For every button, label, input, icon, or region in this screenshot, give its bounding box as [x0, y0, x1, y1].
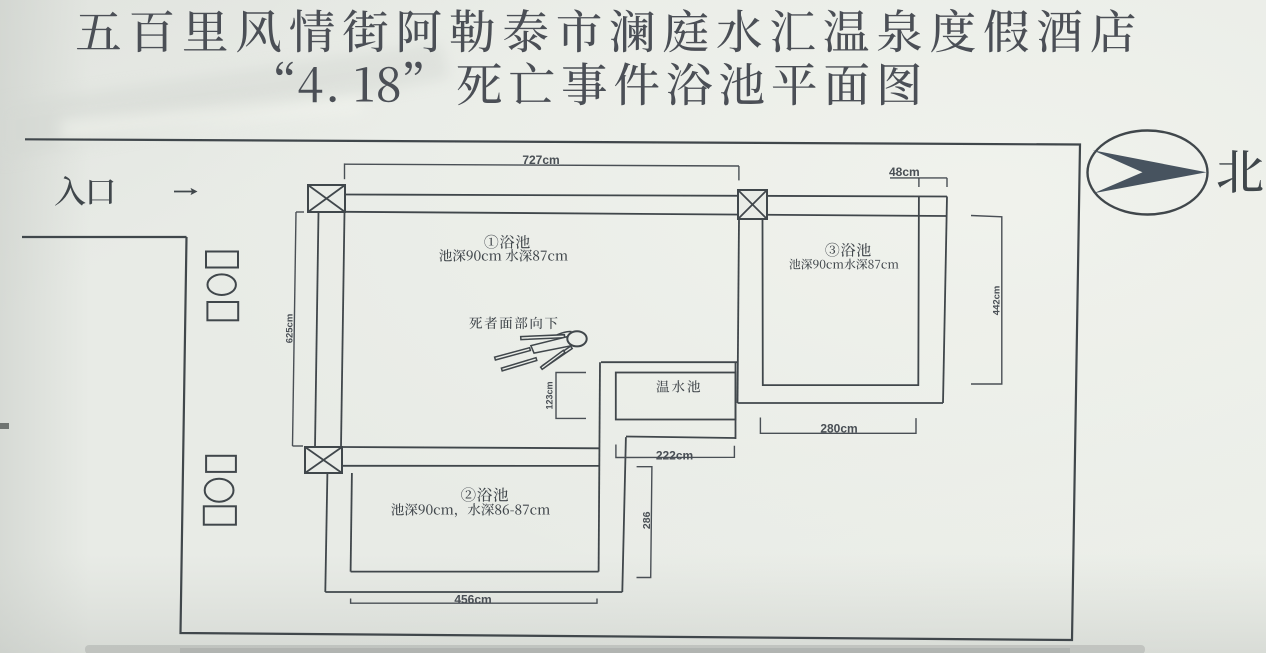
- svg-text:442cm: 442cm: [991, 286, 1002, 316]
- svg-text:286: 286: [641, 511, 653, 529]
- svg-text:48cm: 48cm: [889, 165, 920, 179]
- svg-text:280cm: 280cm: [820, 422, 857, 436]
- svg-text:625cm: 625cm: [285, 314, 296, 344]
- svg-text:123cm: 123cm: [544, 381, 554, 409]
- svg-text:727cm: 727cm: [522, 153, 559, 167]
- svg-text:456cm: 456cm: [454, 593, 491, 607]
- svg-text:222cm: 222cm: [656, 449, 693, 463]
